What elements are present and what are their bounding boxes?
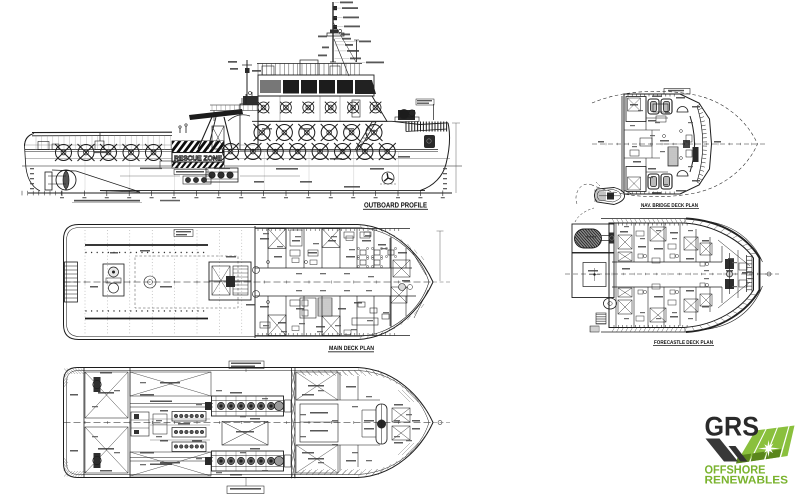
svg-text:NAV. BRIDGE DECK PLAN: NAV. BRIDGE DECK PLAN <box>641 203 698 209</box>
svg-text:RENEWABLES: RENEWABLES <box>705 475 789 487</box>
svg-text:OUTBOARD PROFILE: OUTBOARD PROFILE <box>364 201 427 210</box>
svg-text:GRS: GRS <box>705 412 760 442</box>
svg-text:RESCUE ZONE: RESCUE ZONE <box>174 155 222 162</box>
svg-text:MAIN DECK PLAN: MAIN DECK PLAN <box>329 345 374 352</box>
svg-text:FORECASTLE DECK PLAN: FORECASTLE DECK PLAN <box>654 340 713 346</box>
